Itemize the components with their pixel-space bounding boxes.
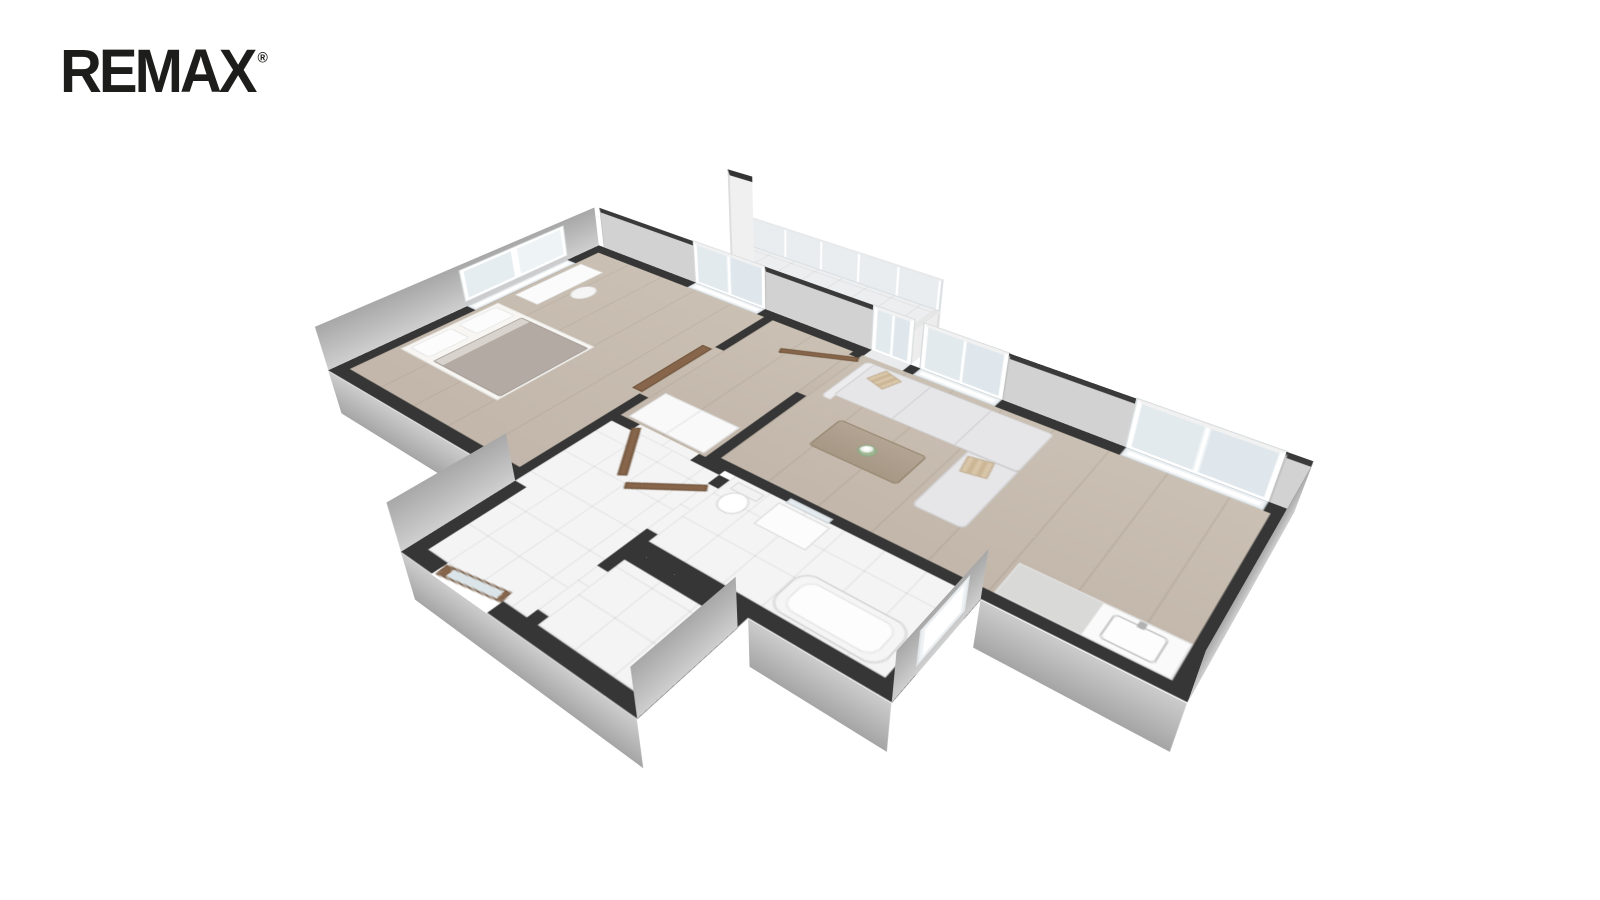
remax-logo: REMAX® [60,36,268,107]
page-canvas: REMAX® [0,0,1600,900]
logo-text: REMAX [60,37,254,106]
floorplan-scene [204,213,1334,900]
registered-mark: ® [257,49,267,66]
chimney [728,169,755,266]
